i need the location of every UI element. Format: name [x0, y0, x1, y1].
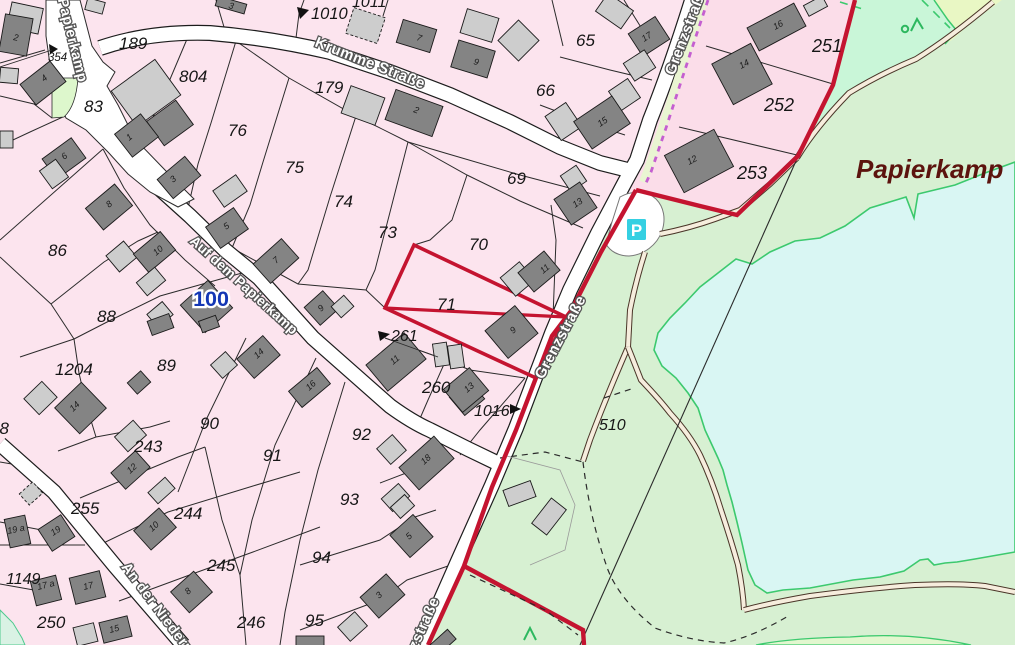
svg-text:243: 243 — [133, 437, 163, 456]
svg-text:1204: 1204 — [55, 360, 93, 379]
svg-text:91: 91 — [263, 446, 282, 465]
svg-text:P: P — [631, 221, 642, 240]
svg-text:189: 189 — [119, 34, 148, 53]
svg-text:255: 255 — [70, 499, 100, 518]
svg-text:88: 88 — [0, 419, 9, 438]
svg-text:1010: 1010 — [311, 5, 349, 23]
svg-text:71: 71 — [437, 295, 456, 314]
svg-text:804: 804 — [179, 67, 207, 86]
svg-text:245: 245 — [206, 556, 236, 575]
svg-text:69: 69 — [507, 169, 526, 188]
svg-text:100: 100 — [193, 287, 229, 311]
svg-text:1016: 1016 — [474, 403, 510, 420]
svg-text:94: 94 — [312, 548, 331, 567]
svg-text:66: 66 — [536, 81, 555, 100]
svg-text:65: 65 — [576, 31, 595, 50]
svg-text:250: 250 — [36, 613, 66, 632]
svg-text:95: 95 — [305, 611, 324, 630]
svg-text:88: 88 — [97, 307, 116, 326]
svg-text:76: 76 — [228, 121, 247, 140]
svg-text:244: 244 — [173, 504, 202, 523]
svg-text:75: 75 — [285, 158, 304, 177]
svg-text:510: 510 — [599, 417, 626, 434]
svg-text:251: 251 — [811, 36, 842, 56]
svg-text:89: 89 — [157, 356, 176, 375]
svg-text:179: 179 — [315, 78, 344, 97]
svg-text:1149: 1149 — [6, 571, 41, 588]
svg-text:74: 74 — [334, 192, 353, 211]
svg-text:70: 70 — [469, 235, 488, 254]
svg-text:253: 253 — [736, 163, 767, 183]
svg-text:86: 86 — [48, 241, 67, 260]
svg-text:73: 73 — [378, 223, 397, 242]
svg-text:93: 93 — [340, 490, 359, 509]
svg-text:260: 260 — [421, 378, 451, 397]
svg-text:261: 261 — [390, 328, 418, 345]
svg-text:1011: 1011 — [352, 0, 386, 11]
svg-text:354: 354 — [48, 52, 67, 64]
svg-text:246: 246 — [236, 613, 266, 632]
svg-text:252: 252 — [763, 95, 794, 115]
svg-text:92: 92 — [352, 425, 371, 444]
svg-text:83: 83 — [84, 97, 103, 116]
svg-text:90: 90 — [200, 414, 219, 433]
svg-text:Papierkamp: Papierkamp — [856, 154, 1004, 184]
